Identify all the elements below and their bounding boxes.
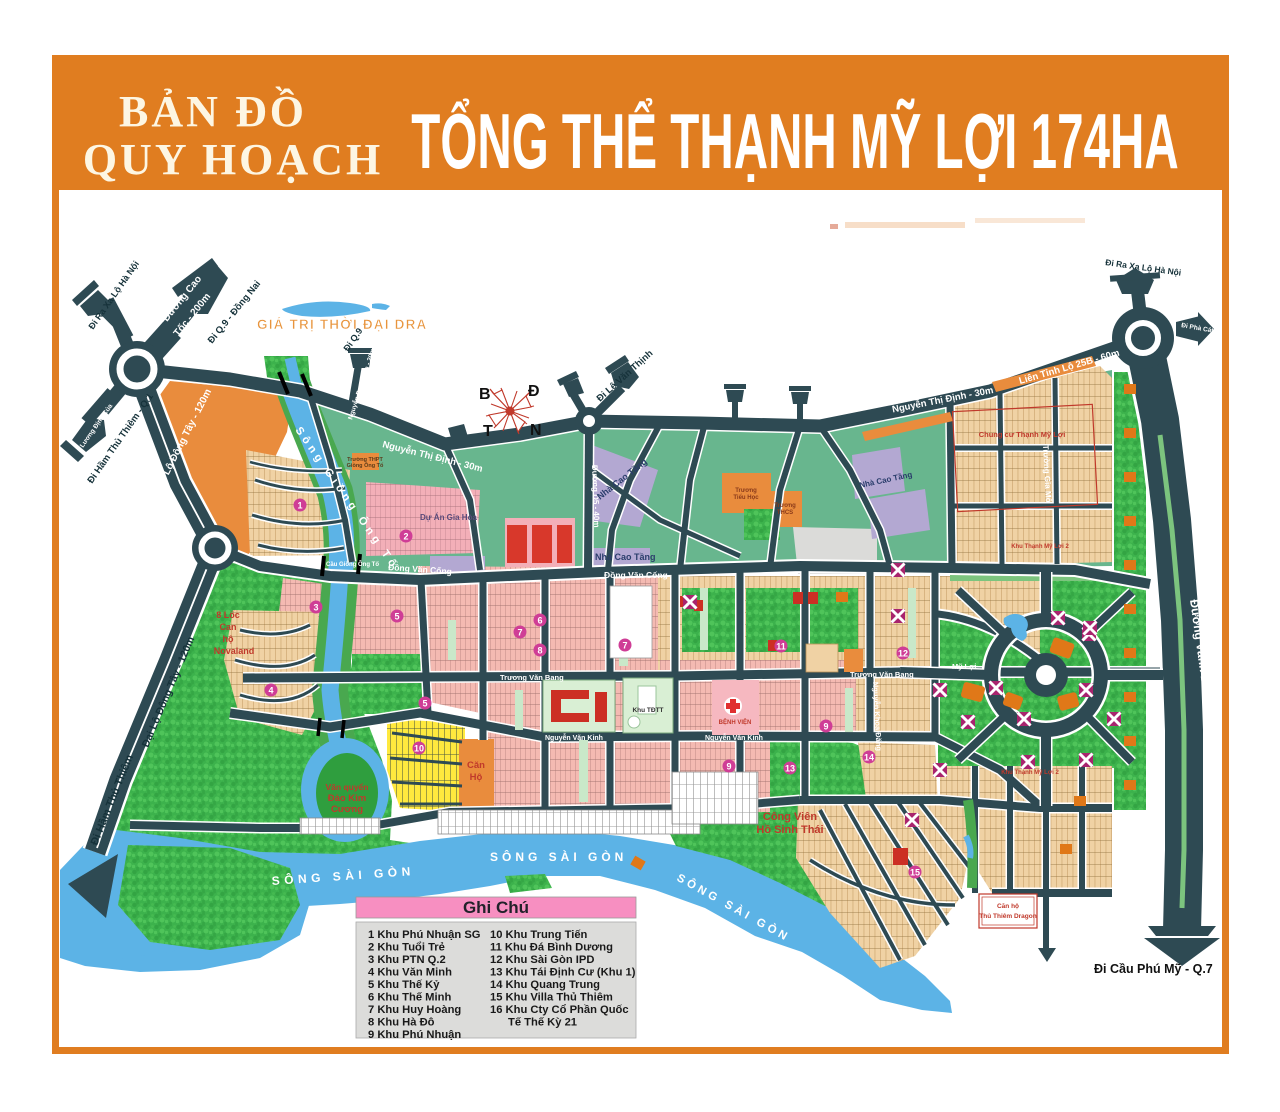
svg-text:Khu TĐTT: Khu TĐTT — [632, 707, 663, 714]
svg-text:15 Khu Villa Thủ Thiêm: 15 Khu Villa Thủ Thiêm — [490, 992, 613, 1004]
svg-text:BỆNH VIỆN: BỆNH VIỆN — [719, 718, 752, 726]
svg-text:12: 12 — [898, 649, 908, 659]
svg-text:10 Khu Trung Tiến: 10 Khu Trung Tiến — [490, 929, 588, 941]
svg-text:THCS: THCS — [777, 510, 793, 516]
svg-text:7 Khu Huy Hoàng: 7 Khu Huy Hoàng — [368, 1004, 461, 1016]
svg-text:hộ: hộ — [223, 634, 234, 644]
svg-text:1 Khu Phú Nhuận SG: 1 Khu Phú Nhuận SG — [368, 929, 481, 941]
svg-text:9: 9 — [823, 722, 828, 732]
svg-text:7: 7 — [622, 641, 627, 651]
svg-text:9: 9 — [726, 762, 731, 772]
svg-text:4 Khu Văn Minh: 4 Khu Văn Minh — [368, 967, 452, 979]
svg-text:Cầu Giồng Ông Tố: Cầu Giồng Ông Tố — [326, 560, 379, 568]
svg-text:Cương: Cương — [331, 804, 363, 815]
svg-text:14: 14 — [864, 753, 874, 763]
svg-text:Khu Thạnh Mỹ Lợi 2: Khu Thạnh Mỹ Lợi 2 — [1001, 770, 1059, 776]
svg-text:N: N — [530, 422, 542, 439]
svg-text:10: 10 — [414, 744, 424, 754]
svg-text:Nhà Cao Tầng: Nhà Cao Tầng — [595, 552, 656, 562]
svg-text:Căn hộ: Căn hộ — [997, 903, 1019, 910]
svg-text:8 Lốc: 8 Lốc — [216, 610, 240, 620]
svg-text:6: 6 — [537, 616, 542, 626]
svg-text:9 Khu Phú Nhuận: 9 Khu Phú Nhuận — [368, 1029, 461, 1041]
svg-text:Thủ Thiêm Dragon: Thủ Thiêm Dragon — [979, 913, 1036, 920]
svg-text:12 Khu Sài Gòn IPD: 12 Khu Sài Gòn IPD — [490, 954, 594, 966]
svg-text:Trương: Trương — [735, 488, 757, 494]
svg-text:Đảo Kim: Đảo Kim — [328, 793, 367, 804]
svg-text:Novaland: Novaland — [214, 646, 255, 656]
svg-text:Giồng Ông Tố: Giồng Ông Tố — [347, 461, 384, 469]
svg-text:Chung cư Thạnh Mỹ Lợi: Chung cư Thạnh Mỹ Lợi — [979, 430, 1066, 439]
svg-text:7: 7 — [517, 628, 522, 638]
svg-text:Nguyễn Văn Kỉnh: Nguyễn Văn Kỉnh — [705, 733, 763, 742]
svg-text:Văn quyển: Văn quyển — [326, 782, 369, 792]
svg-text:Hộ: Hộ — [470, 772, 483, 783]
svg-text:2 Khu Tuổi Trẻ: 2 Khu Tuổi Trẻ — [368, 942, 445, 954]
svg-text:Công Viên: Công Viên — [763, 811, 817, 823]
svg-text:8 Khu Hà Đô: 8 Khu Hà Đô — [368, 1017, 435, 1029]
svg-text:Căn: Căn — [467, 760, 485, 771]
svg-text:Nguyễn Văn Kỉnh: Nguyễn Văn Kỉnh — [545, 733, 603, 742]
svg-text:QUY HOẠCH: QUY HOẠCH — [83, 135, 383, 184]
svg-text:Ghi Chú: Ghi Chú — [463, 898, 529, 917]
svg-text:3: 3 — [313, 603, 318, 613]
svg-text:Khu Thạnh Mỹ Lợi 2: Khu Thạnh Mỹ Lợi 2 — [1011, 544, 1069, 550]
svg-text:TỔNG THỂ THẠNH MỸ LỢI 174HA: TỔNG THỂ THẠNH MỸ LỢI 174HA — [411, 97, 1178, 185]
svg-text:Đ: Đ — [528, 383, 540, 400]
svg-text:Trương: Trương — [774, 503, 796, 509]
svg-text:14 Khu Quang Trung: 14 Khu Quang Trung — [490, 979, 600, 991]
svg-text:Trương Văn Bang: Trương Văn Bang — [500, 673, 564, 682]
svg-text:3 Khu PTN Q.2: 3 Khu PTN Q.2 — [368, 954, 446, 966]
svg-text:2: 2 — [403, 532, 408, 542]
svg-text:BẢN ĐỒ: BẢN ĐỒ — [119, 86, 307, 136]
svg-text:1: 1 — [297, 501, 302, 511]
svg-text:Can: Can — [219, 622, 236, 632]
svg-text:B: B — [479, 386, 491, 403]
svg-text:5: 5 — [394, 612, 399, 622]
svg-text:SÔNG SÀI GÒN: SÔNG SÀI GÒN — [490, 849, 627, 864]
svg-text:Mỹ Lợi: Mỹ Lợi — [952, 662, 977, 671]
svg-text:Tiểu Học: Tiểu Học — [733, 494, 759, 501]
svg-text:11: 11 — [776, 642, 786, 652]
svg-text:4: 4 — [268, 686, 273, 696]
svg-text:Đi Cầu Phú Mỹ - Q.7: Đi Cầu Phú Mỹ - Q.7 — [1094, 962, 1213, 976]
svg-text:Đồng Văn Cống: Đồng Văn Cống — [604, 570, 668, 580]
svg-text:5 Khu Thế Kỷ: 5 Khu Thế Kỷ — [368, 979, 440, 991]
svg-text:16 Khu Cty Cổ Phần Quốc: 16 Khu Cty Cổ Phần Quốc — [490, 1004, 629, 1016]
svg-text:Trương Văn Bang: Trương Văn Bang — [850, 670, 914, 679]
svg-text:Tế Thế Kỳ 21: Tế Thế Kỳ 21 — [508, 1017, 577, 1029]
svg-text:Dự Án Gia Hòa: Dự Án Gia Hòa — [420, 513, 477, 522]
svg-text:8: 8 — [537, 646, 542, 656]
svg-text:13 Khu Tái Định Cư (Khu 1): 13 Khu Tái Định Cư (Khu 1) — [490, 967, 636, 979]
svg-text:13: 13 — [785, 764, 795, 774]
svg-text:T: T — [483, 423, 493, 440]
svg-text:6 Khu Thế Minh: 6 Khu Thế Minh — [368, 992, 451, 1004]
svg-text:15: 15 — [910, 868, 920, 878]
svg-text:Hồ Sinh Thái: Hồ Sinh Thái — [756, 824, 823, 836]
svg-text:11 Khu Đá Bình Dương: 11 Khu Đá Bình Dương — [490, 942, 613, 954]
svg-text:GIÁ TRỊ THỜI ĐẠI DRA: GIÁ TRỊ THỜI ĐẠI DRA — [257, 317, 428, 332]
svg-text:5: 5 — [422, 699, 427, 709]
